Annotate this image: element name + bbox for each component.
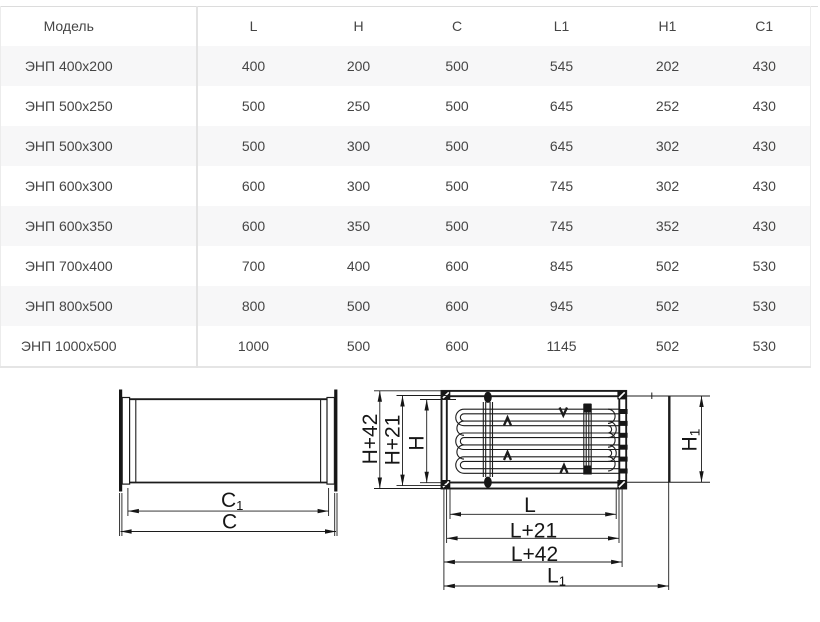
svg-text:H+42: H+42 — [359, 414, 382, 465]
svg-text:L: L — [524, 494, 536, 517]
svg-text:C1: C1 — [221, 489, 243, 513]
svg-text:C: C — [222, 511, 237, 534]
svg-text:L1: L1 — [547, 565, 566, 589]
svg-text:L+42: L+42 — [511, 543, 558, 566]
svg-text:L+21: L+21 — [510, 519, 557, 542]
svg-text:H+21: H+21 — [382, 415, 405, 466]
svg-text:H: H — [406, 435, 429, 450]
svg-text:H1: H1 — [679, 428, 703, 451]
